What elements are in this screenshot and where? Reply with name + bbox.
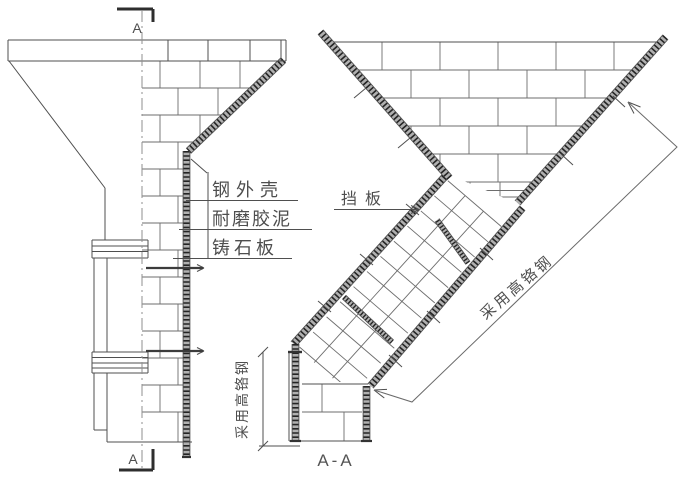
drawing-line [435, 221, 466, 264]
drawing-line [398, 138, 410, 148]
drawing-line [323, 30, 452, 176]
drawing-line [191, 62, 286, 153]
section-title: A-A [317, 451, 354, 470]
drawing-line [613, 96, 625, 107]
drawing-line [354, 88, 366, 98]
label-steel-outer-shell: 钢外壳 [212, 180, 284, 200]
label-high-chromium-steel-vertical: 采用高铬钢 [234, 359, 250, 439]
drawing-line [520, 39, 668, 205]
hopper-brick-lining [330, 42, 662, 203]
drawing-line [561, 154, 573, 165]
label-baffle-plate: 挡板 [341, 190, 389, 208]
drawing-line [9, 61, 105, 188]
vertical-duct-brick-lining [302, 384, 362, 441]
drawing-line [191, 159, 207, 173]
outline-linework [8, 40, 657, 457]
label-cast-stone-plate: 铸石板 [212, 238, 278, 258]
section-marker-top: A [132, 20, 142, 36]
drawing-line [346, 295, 394, 340]
drawing-line [374, 389, 387, 390]
drawing-line [515, 35, 663, 201]
chute-engineering-drawing: A A 钢外壳 耐磨胶泥 铸石板 挡板 采用高铬钢 采用高铬钢 A-A [0, 0, 697, 482]
label-wear-resistant-mortar: 耐磨胶泥 [212, 209, 292, 229]
drawing-canvas: A A 钢外壳 耐磨胶泥 铸石板 挡板 采用高铬钢 采用高铬钢 A-A [0, 0, 697, 482]
label-high-chromium-steel-incline: 采用高铬钢 [477, 252, 556, 323]
drawing-line [318, 34, 447, 180]
drawing-line [333, 211, 484, 378]
section-marker-bottom: A [128, 451, 138, 467]
incline-chute-brick-lining [298, 180, 503, 393]
drawing-line [298, 345, 354, 393]
